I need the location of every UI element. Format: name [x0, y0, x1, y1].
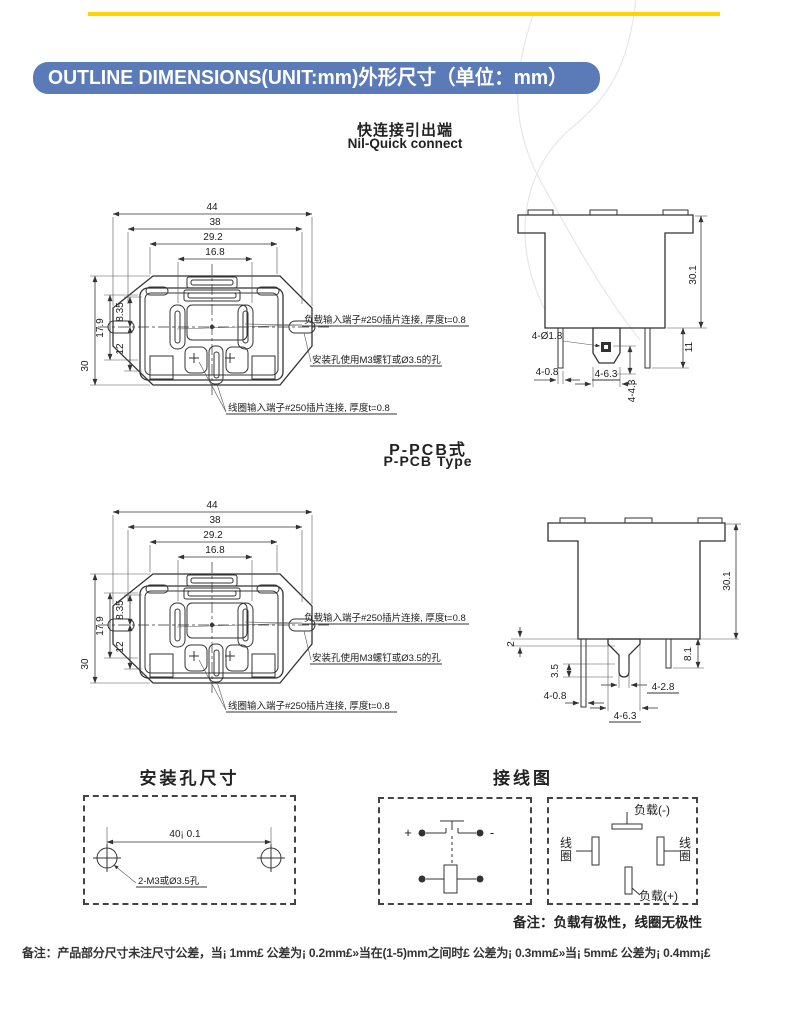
- dim-44-label: 44: [206, 500, 218, 511]
- dim-4-0-8-label: 4-0.8: [544, 691, 567, 702]
- dim-8-35-label: 8.35: [115, 302, 126, 322]
- minus-terminal-label: -: [490, 825, 494, 840]
- plus-terminal-label: +: [404, 825, 412, 840]
- dim-12-label: 12: [115, 343, 126, 355]
- dim-30-label: 30: [80, 658, 91, 670]
- pcb-bottom-view-drawing: 44 38 29.2 16.8 30 17.9 8.35 12 负载输入端子#2…: [80, 484, 472, 724]
- dim-4-0-8-label: 4-0.8: [536, 367, 559, 378]
- dim-30-1-label: 30.1: [688, 265, 699, 285]
- dim-30-label: 30: [80, 360, 91, 372]
- wiring-section-title: 接线图: [378, 764, 668, 789]
- coil-terminal-callout: 线圈输入端子#250插片连接, 厚度t=0.8: [228, 402, 390, 414]
- dim-29-2-label: 29.2: [203, 232, 223, 243]
- dim-38-label: 38: [209, 217, 221, 228]
- dim-4-6-3-label: 4-6.3: [614, 711, 637, 722]
- dim-17-9-label: 17.9: [95, 318, 106, 338]
- dim-12-label: 12: [115, 641, 126, 653]
- polarity-note: 备注：负载有极性，线圈无极性: [513, 911, 702, 931]
- coil-left-label: 线圈: [560, 837, 574, 863]
- mounting-hole-drawing: 40¡ 0.1 2-M3或Ø3.5孔: [85, 797, 294, 903]
- coil-terminal-callout: 线圈输入端子#250插片连接, 厚度t=0.8: [228, 700, 390, 712]
- dim-16-8-label: 16.8: [205, 545, 225, 556]
- dim-38-label: 38: [209, 515, 221, 526]
- dim-11-label: 11: [684, 341, 695, 352]
- quick-bottom-view-drawing: 44 38 29.2 16.8 30 17.9 8.35 12 负载输入端子#2…: [80, 186, 472, 426]
- coil-right-label: 线圈: [679, 837, 693, 863]
- dim-16-8-label: 16.8: [205, 247, 225, 258]
- dim-44-label: 44: [206, 202, 218, 213]
- dim-8-35-label: 8.35: [115, 600, 126, 620]
- mount-hole-callout: 安装孔使用M3螺钉或Ø3.5的孔: [312, 354, 441, 366]
- quick-side-view-drawing: 30.1 11 4-Ø1.8 4-0.8 4-6.3 4-4.3: [490, 195, 720, 407]
- hole-callout-4-d1-8: 4-Ø1.8: [532, 331, 563, 342]
- section-banner-label: OUTLINE DIMENSIONS(UNIT:mm)外形尺寸（单位：mm）: [48, 62, 568, 94]
- mounting-section-title: 安装孔尺寸: [83, 764, 296, 789]
- load-terminal-callout: 负载输入端子#250插片连接, 厚度t=0.8: [304, 612, 466, 624]
- wiring-schematic-drawing: + -: [380, 799, 530, 903]
- load-terminal-callout: 负载输入端子#250插片连接, 厚度t=0.8: [304, 314, 466, 326]
- dim-17-9-label: 17.9: [95, 616, 106, 636]
- accent-rule: [88, 12, 720, 16]
- mount-hole-callout: 安装孔使用M3螺钉或Ø3.5的孔: [312, 652, 441, 664]
- terminal-layout-box: 负载(-) 线圈 线圈 负载(+): [547, 797, 698, 905]
- dim-3-5-label: 3.5: [550, 664, 561, 678]
- load-negative-label: 负载(-): [634, 801, 670, 818]
- dim-2-label: 2: [506, 641, 517, 647]
- quick-connect-title-en: Nil-Quick connect: [255, 136, 555, 151]
- wiring-schematic-box: + -: [378, 797, 532, 905]
- pcb-title-en: P-PCB Type: [278, 453, 578, 469]
- hole-size-callout: 2-M3或Ø3.5孔: [138, 875, 200, 887]
- mounting-hole-box: 40¡ 0.1 2-M3或Ø3.5孔: [83, 795, 296, 905]
- dim-4-4-3-label: 4-4.3: [627, 379, 638, 402]
- pcb-side-view-drawing: 30.1 2 3.5 8.1 4-2.8 4-0.8 4-6.3: [495, 495, 745, 730]
- relay-bottom-outline: [108, 276, 315, 385]
- dim-4-2-8-label: 4-2.8: [652, 682, 675, 693]
- relay-side-outline: [511, 518, 739, 707]
- datasheet-page: OUTLINE DIMENSIONS(UNIT:mm)外形尺寸（单位：mm） 快…: [0, 0, 790, 1034]
- relay-side-outline: [518, 210, 693, 368]
- section-banner: OUTLINE DIMENSIONS(UNIT:mm)外形尺寸（单位：mm）: [33, 62, 600, 94]
- toler­ance-footnote: 备注：产品部分尺寸未注尺寸公差，当¡ 1mm£ 公差为¡ 0.2mm£»当在(1…: [22, 944, 782, 961]
- dim-4-6-3-label: 4-6.3: [595, 369, 618, 380]
- load-positive-label: 负载(+): [639, 887, 678, 904]
- dim-29-2-label: 29.2: [203, 530, 223, 541]
- dim-8-1-label: 8.1: [683, 647, 694, 661]
- relay-bottom-outline: [108, 574, 315, 683]
- hole-spacing-dim: 40¡ 0.1: [169, 829, 201, 840]
- dim-30-1-label: 30.1: [722, 571, 733, 591]
